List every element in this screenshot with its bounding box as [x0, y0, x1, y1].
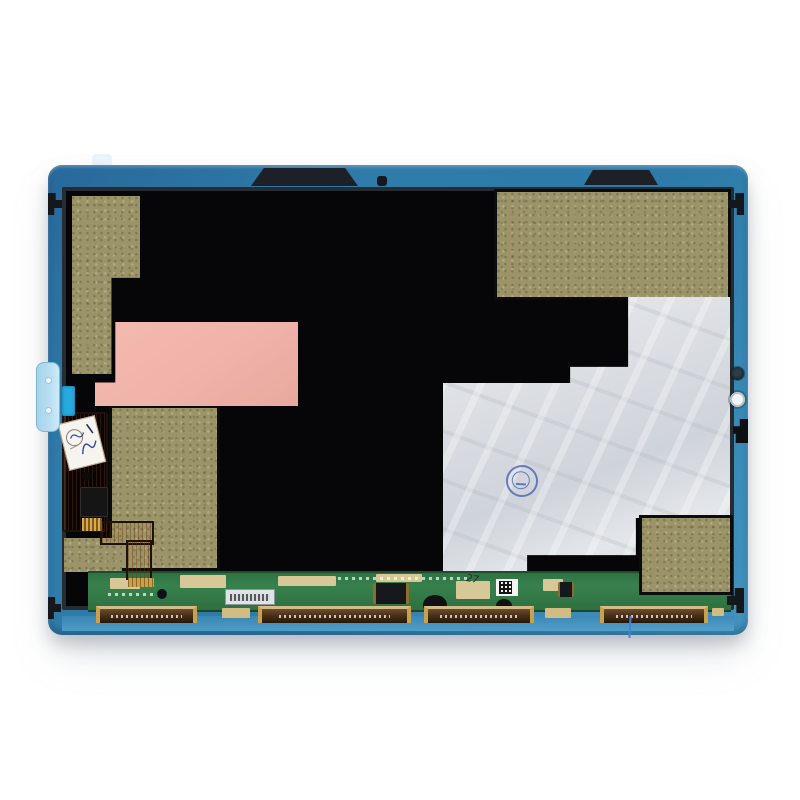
handwritten-number: 27 — [465, 573, 479, 586]
camera-hole — [377, 176, 387, 186]
flex-gold-contacts — [82, 518, 102, 531]
board-connector-2 — [258, 606, 411, 623]
silkscreen-text — [338, 577, 468, 580]
small-ic — [558, 582, 574, 597]
adhesive-patch-bottom-right — [642, 518, 730, 592]
qr-code-label — [496, 579, 518, 596]
side-hole-light — [730, 392, 745, 407]
pcb-pad — [180, 575, 226, 588]
frame-accent-tab — [62, 386, 75, 416]
board-connector-3 — [424, 606, 534, 623]
lcd-connector-pins — [230, 594, 270, 601]
side-hole-dark — [731, 367, 744, 380]
adhesive-patch-top-right — [497, 192, 728, 297]
edge-pad — [545, 608, 571, 618]
pcb-pad — [278, 576, 336, 586]
board-connector-1 — [96, 606, 197, 623]
pull-tab — [36, 362, 60, 432]
driver-ic — [373, 583, 409, 604]
product-photo: 27 — [0, 0, 800, 800]
board-connector-4 — [600, 606, 708, 623]
pull-tab-hole — [45, 377, 52, 384]
pink-thermal-sticker — [95, 322, 298, 406]
flex-alignment-hole — [82, 472, 91, 481]
pull-tab-hole — [45, 407, 52, 414]
top-antenna-cutout-left — [251, 168, 358, 186]
flex-ic-chip — [80, 487, 108, 517]
lcd-connector — [225, 589, 275, 605]
flex-gold-pad — [128, 578, 154, 587]
flex-cable-lower — [126, 540, 152, 580]
pcb-hole — [157, 589, 167, 599]
top-antenna-cutout-right — [584, 170, 658, 185]
edge-pad — [712, 608, 724, 616]
edge-pad — [222, 608, 250, 618]
